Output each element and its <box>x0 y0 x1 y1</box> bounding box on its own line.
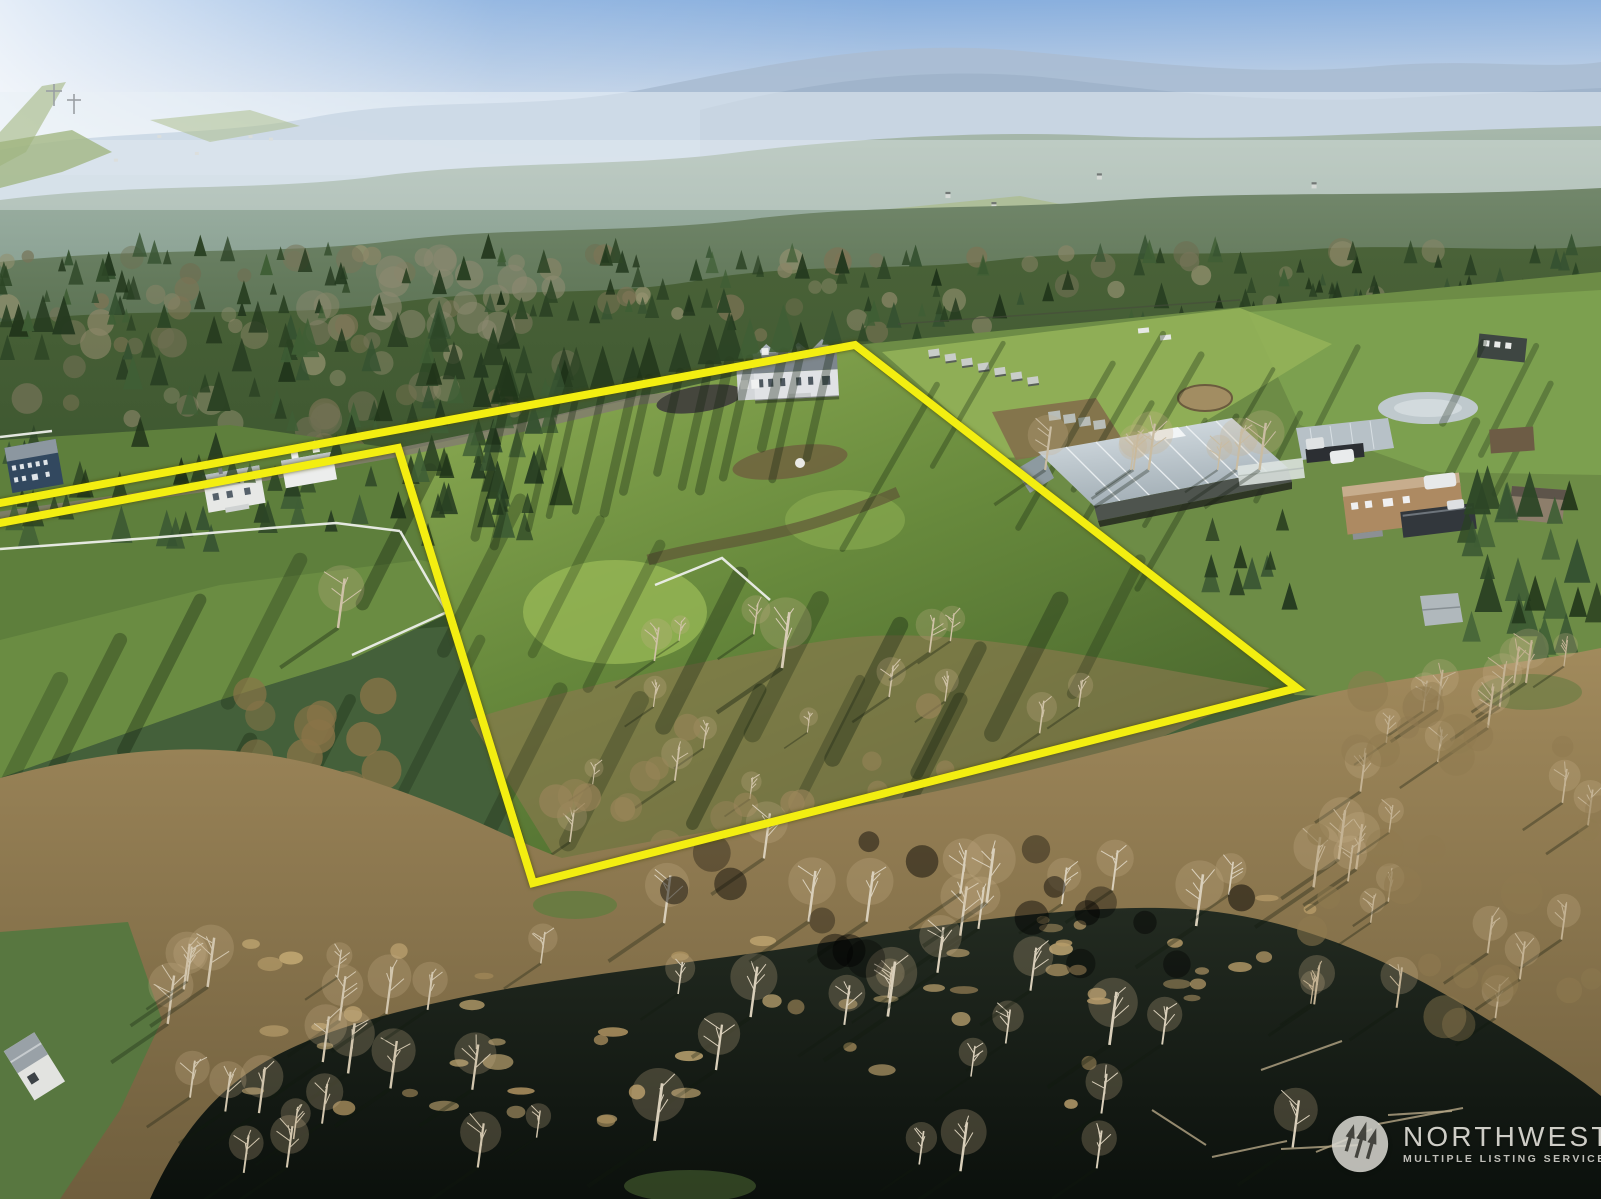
blue-house <box>4 439 63 493</box>
round-pen <box>1178 385 1232 411</box>
gray-shed <box>1420 593 1463 626</box>
aerial-scene <box>0 0 1601 1199</box>
listing-photo: NORTHWEST MULTIPLE LISTING SERVICE® <box>0 0 1601 1199</box>
brown-shed <box>1489 426 1535 453</box>
moss-green-1 <box>533 891 617 919</box>
van-2 <box>1305 437 1324 450</box>
